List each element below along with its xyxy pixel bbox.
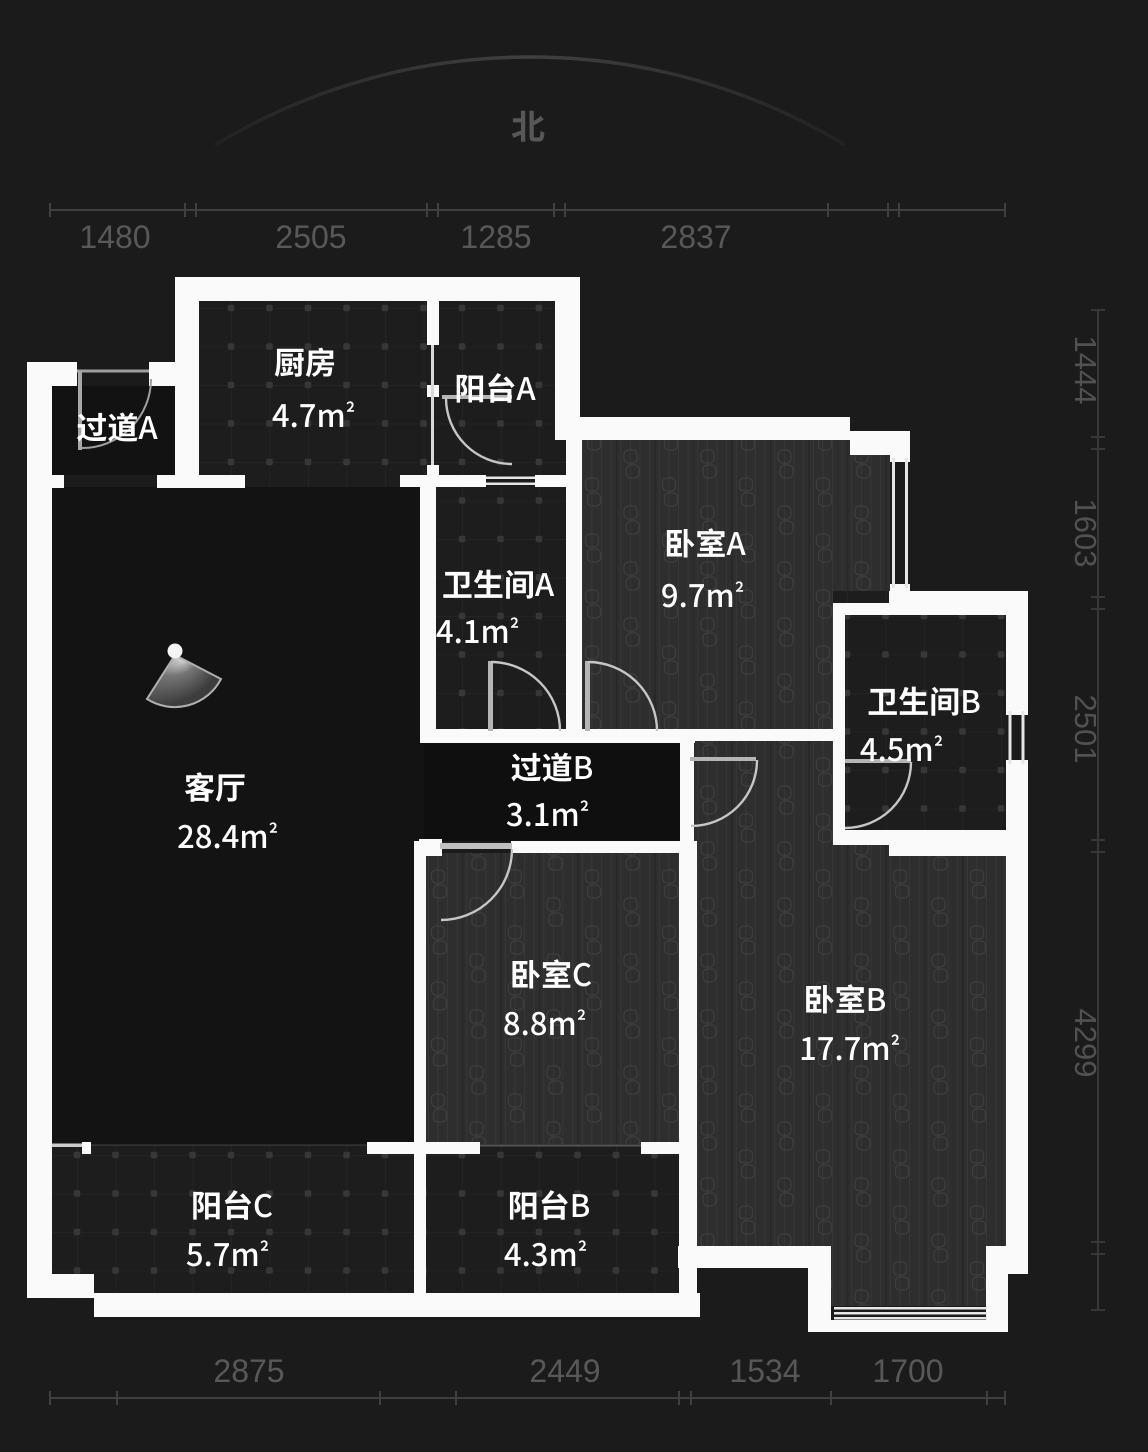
svg-text:2875: 2875 xyxy=(213,1353,284,1389)
svg-text:2501: 2501 xyxy=(1068,695,1103,764)
svg-text:2505: 2505 xyxy=(275,219,346,255)
svg-text:1444: 1444 xyxy=(1068,336,1103,405)
svg-text:2449: 2449 xyxy=(529,1353,600,1389)
svg-text:1285: 1285 xyxy=(460,219,531,255)
svg-text:1534: 1534 xyxy=(729,1353,800,1389)
svg-text:1480: 1480 xyxy=(79,219,150,255)
svg-text:1700: 1700 xyxy=(872,1353,943,1389)
svg-text:1603: 1603 xyxy=(1068,499,1103,568)
svg-text:4299: 4299 xyxy=(1068,1009,1103,1078)
svg-text:2837: 2837 xyxy=(660,219,731,255)
